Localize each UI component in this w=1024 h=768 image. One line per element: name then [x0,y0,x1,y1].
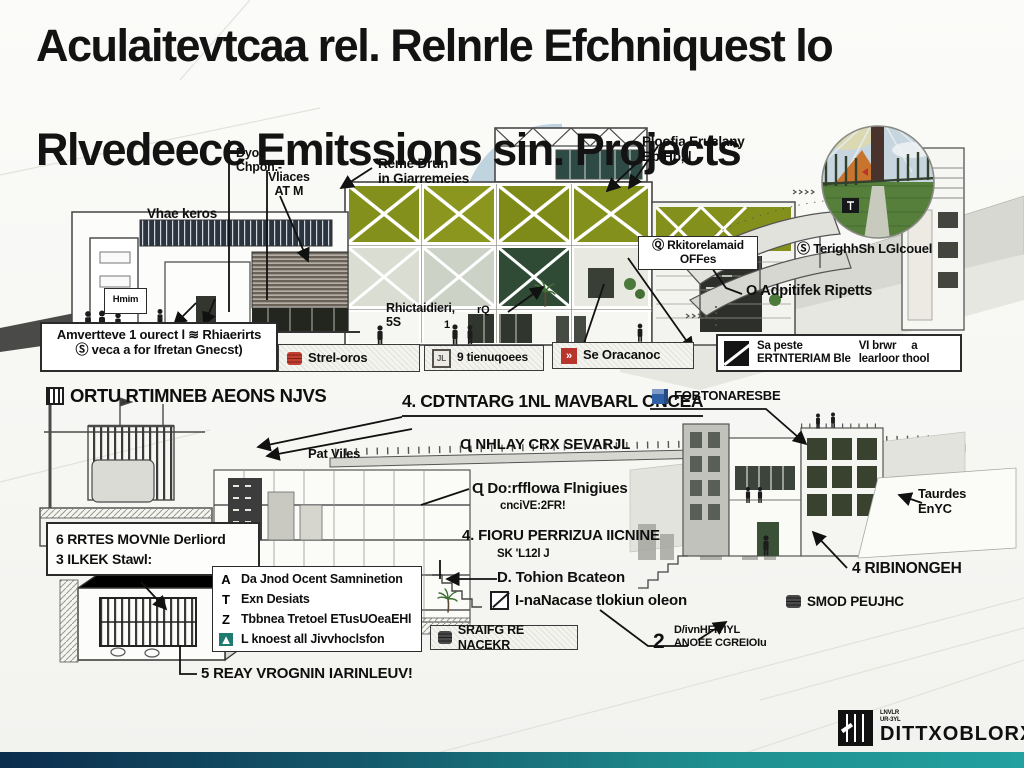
label-terighhsh: Ⓢ TerighhSh LGlcouel [797,242,932,257]
label-tohion: D. Tohion Bcateon [497,569,625,586]
checklist-text: Exn Desiats [241,592,310,606]
label-vhae-keros: Vhae keros [147,206,217,221]
label-reme-drun: Reme Drun in Giarremeies [378,156,469,187]
hmim-sign: Hmim [104,288,147,314]
checklist-glyph: A [219,572,233,587]
checklist-glyph: Z [219,612,233,627]
title-line1: Aculaitevtcaa rel. Relnrle Efchniquest l… [36,20,832,71]
checklist-box: A Da Jnod Ocent Samninetion T Exn Desiat… [212,566,422,652]
legend-left-box: Amvertteve 1 ourect l ≋ Rhiaerirts Ⓢ vec… [40,322,278,372]
checklist-glyph: T [219,592,233,607]
legend-right-col2: VI brwr a learloor thool [859,340,930,366]
label-one: 1 [444,319,450,332]
label-ribinongeh: 4 RIBINONGEH [852,560,962,578]
sraifg-text: SRAIFG RE NACEKR [458,623,570,652]
label-fioru-sub: SK 'L12l J [497,548,550,561]
logo-small-text: LNVLR UR-3YL [880,710,1024,723]
checklist-text: L knoest all Jivvhoclsfon [241,632,384,646]
smod-label: SMOD PEUJHC [786,594,904,609]
legend-right-box: Sa peste ERTNTERIAM Ble VI brwr a learlo… [716,334,962,372]
strip-item-oracanoc: » Se Oracanoc [552,342,694,369]
label-nhlay: Ɋ NHLAY CRX SEVARJL [460,436,630,453]
left-building [72,212,360,334]
strip-item-strel: Strel-oros [278,344,420,372]
smod-text: SMOD PEUJHC [807,594,904,609]
expand-arrows-icon [724,341,749,366]
label-ploofia: Ploofia Eruclany BbiHb, | [642,134,745,165]
architectural-infographic: Aculaitevtcaa rel. Relnrle Efchniquest l… [0,0,1024,768]
label-taurdes: Taurdes EnYC [918,487,966,517]
checklist-item: A Da Jnod Ocent Samninetion [219,569,415,589]
label-adpitifek: O Adpitifek Ripetts [746,283,872,300]
ortu-heading-text: ORTU RTIMNEB AEONS NJVS [70,385,326,406]
label-fioru: 4. FIORU PERRIZUA IICNINE [462,527,660,544]
inanacase-text: I-naNacase tlokiun oleon [515,592,687,609]
checklist-item: T Exn Desiats [219,589,415,609]
strip-item-tienuqoees: JL 9 tienuqoees [424,345,544,371]
legend-left-row2: Ⓢ veca a for Ifretan Gnecst) [48,343,270,358]
stamp-icon: JL [432,349,451,368]
label-pat-viles: Pat Viles [308,447,360,462]
diagonal-square-icon [490,591,509,610]
label-vliaces: Vliaces AT M [268,170,310,199]
grid-icon [46,387,64,405]
footer-gradient-bar [0,752,1024,768]
label-rq: rQ [477,304,489,317]
gray-layers-icon [786,595,801,608]
red-layers-icon [287,352,302,365]
checklist-text: Da Jnod Ocent Samninetion [241,572,403,586]
checklist-item: ▲ L knoest all Jivvhoclsfon [219,629,415,649]
strip-label-tienuqoees: 9 tienuqoees [457,351,528,365]
rkitorelamaid-box: Ⓠ Rkitorelamaid OFFes [638,236,758,270]
rkitorelamaid-text: Ⓠ Rkitorelamaid OFFes [639,239,757,266]
label-number-2: 2 [653,630,664,654]
checklist-text: Tbbnea Tretoel ETusUOeaEHl [241,612,411,626]
label-doflowa-sub: cnciVE:2FR! [500,500,566,513]
fobtonaresbe-label: FOBTONARESBE [652,389,780,404]
teal-triangle-icon: ▲ [219,633,233,646]
logo-text: DITTXOBLORX [880,723,1024,746]
label-doflowa: Ɋ Do:rfflowa Flnigiues [472,480,628,497]
brand-logo: LNVLR UR-3YL DITTXOBLORX [838,710,1024,746]
red-badge-icon: » [561,348,577,364]
inanacase-label: I-naNacase tlokiun oleon [490,591,687,610]
hmim-text: Hmim [105,295,146,306]
label-reay: 5 REAY VROGNIN IARINLEUV! [201,665,413,682]
sraifg-box: SRAIFG RE NACEKR [430,625,578,650]
section-heading-ortu: ORTU RTIMNEB AEONS NJVS [46,385,326,406]
checklist-item: Z Tbbnea Tretoel ETusUOeaEHl [219,609,415,629]
blue-cube-icon [652,389,668,404]
dark-layers-icon [438,631,452,644]
logo-grid-icon [838,710,873,746]
strip-label-oracanoc: Se Oracanoc [583,348,660,363]
rrtes-text: 6 RRTES MOVNIe Derliord 3 ILKEK Stawl: [56,529,250,570]
strip-label-strel: Strel-oros [308,351,367,366]
label-dvn: D/ivnHFITIYL ANOEE CGREIOIu [674,624,767,649]
fobtonaresbe-text: FOBTONARESBE [674,389,780,404]
legend-left-row1: Amvertteve 1 ourect l ≋ Rhiaerirts [48,328,270,343]
legend-right-col1: Sa peste ERTNTERIAM Ble [757,340,851,366]
